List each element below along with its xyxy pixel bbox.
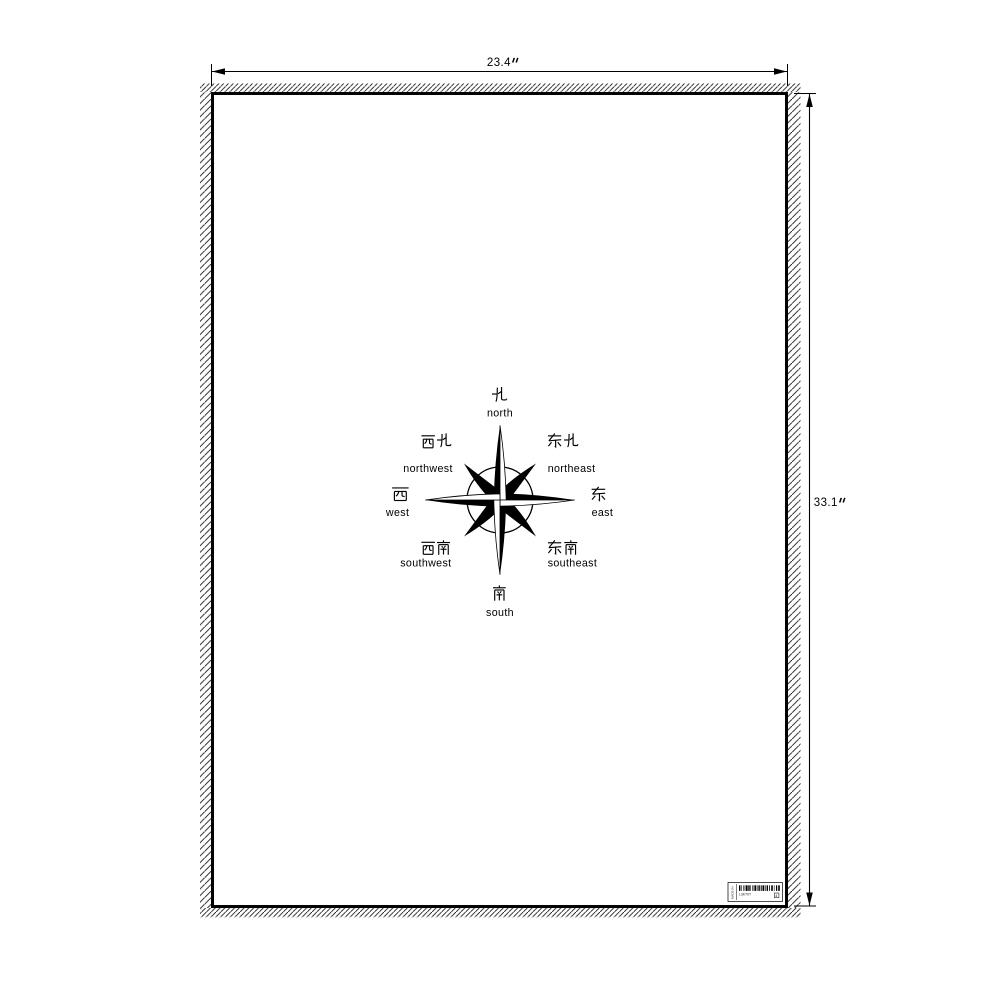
svg-text:southwest: southwest	[400, 558, 451, 570]
svg-text:east: east	[592, 507, 614, 519]
svg-text:4: 4	[775, 894, 777, 898]
svg-text:west: west	[385, 507, 409, 519]
svg-text:MADE IN: MADE IN	[731, 886, 735, 899]
svg-text:northeast: northeast	[548, 463, 596, 475]
svg-text:southeast: southeast	[548, 558, 598, 570]
svg-text:northwest: northwest	[403, 463, 453, 475]
svg-text:north: north	[487, 408, 513, 420]
svg-text:south: south	[486, 607, 514, 619]
svg-text:33.1: 33.1	[814, 497, 838, 509]
svg-text:23.4: 23.4	[487, 57, 511, 69]
svg-text:L3KT0T: L3KT0T	[739, 893, 751, 897]
